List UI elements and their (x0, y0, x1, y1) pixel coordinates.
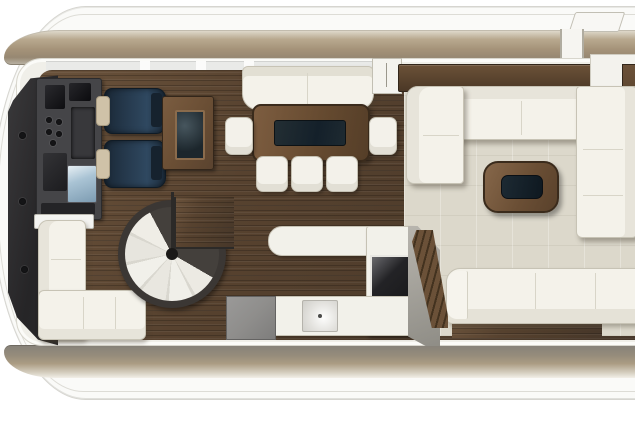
bulkhead-fitting (19, 198, 26, 205)
sink-drain (318, 314, 322, 318)
bulkhead-fitting (19, 132, 26, 139)
helm-button (50, 140, 56, 146)
galley-cooktop (370, 255, 412, 301)
helm-panel (43, 153, 67, 191)
helm-button (46, 129, 52, 135)
staircase-post (171, 192, 174, 254)
saloon-sofa-right-wing (576, 86, 635, 238)
helm-console (36, 78, 102, 220)
yacht-floorplan (0, 0, 635, 423)
helm-panel (71, 107, 95, 159)
helm-display (69, 83, 91, 101)
sofa-arm (447, 271, 468, 319)
saloon-sofa-left-wing (406, 86, 464, 184)
seat-bolster (151, 93, 162, 127)
galley-appliance (226, 296, 276, 340)
staircase-notch-floor (174, 197, 234, 249)
bulkhead-fitting (21, 266, 28, 273)
helm-side-cabinet (162, 96, 214, 170)
seat-headrest (96, 149, 110, 179)
saloon-aft-sofa (446, 268, 635, 324)
helm-seat-aft (104, 140, 166, 188)
window-mullion (140, 61, 150, 70)
coffee-table-inlay (501, 175, 543, 199)
dining-chair (369, 117, 397, 155)
cabinet-glass-top (175, 110, 205, 160)
helm-button (56, 131, 62, 137)
spiral-staircase (118, 200, 230, 312)
staircase-hub (166, 248, 178, 260)
dining-table (252, 104, 370, 162)
helm-button (56, 119, 62, 125)
table-inlay (274, 120, 346, 146)
seat-bolster (151, 146, 162, 180)
dining-chair (326, 156, 358, 192)
chartplotter-screen (67, 165, 97, 203)
helm-display (45, 85, 65, 109)
saloon-coffee-table (483, 161, 559, 213)
dining-chair (256, 156, 288, 192)
side-deck-bottom (4, 345, 635, 378)
dining-chair (291, 156, 323, 192)
galley-counter-bottom (272, 296, 414, 336)
galley-sink (302, 300, 338, 332)
dining-chair (225, 117, 253, 155)
window-mullion (196, 61, 206, 70)
helm-seat-forward (104, 88, 166, 134)
helm-button (46, 117, 52, 123)
seat-headrest (96, 96, 110, 126)
